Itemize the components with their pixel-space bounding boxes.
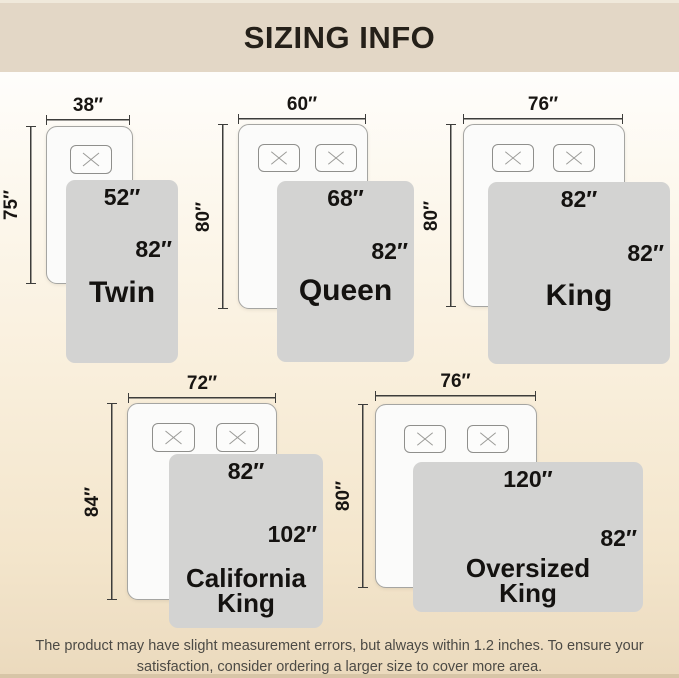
blanket-overlay: 82″ 102″ CaliforniaKing [169,454,323,628]
x-mark-icon [405,426,445,452]
dimension-line [463,114,623,124]
page-title: SIZING INFO [244,20,436,56]
mattress-width-dimension: 72″ [128,373,276,403]
blanket-length-label: 82″ [135,236,172,263]
mattress-width-dimension: 60″ [238,94,366,124]
bed-name-label: Twin [66,277,178,309]
dimension-line [238,114,366,124]
dimension-line [128,393,276,403]
dimension-line [375,391,536,401]
blanket-width-label: 82″ [169,458,323,485]
pillow-icon [492,144,534,172]
blanket-width-label: 82″ [488,186,670,213]
mattress-width-label: 76″ [463,94,623,113]
pillow-icon [258,144,300,172]
bed-name-label: Queen [277,275,414,307]
pillow-icon [70,145,112,174]
mattress-length-label: 84″ [82,486,104,516]
mattress-length-label: 80″ [333,481,355,511]
mattress-width-dimension: 76″ [375,371,536,401]
mattress-width-dimension: 76″ [463,94,623,124]
mattress-length-label: 75″ [1,190,23,220]
mattress-length-dimension: 80″ [218,124,228,309]
disclaimer-line-1: The product may have slight measurement … [35,638,643,654]
pillow-icon [216,423,259,452]
blanket-length-label: 102″ [268,521,317,548]
bed-name-label: King [488,280,670,312]
blanket-overlay: 120″ 82″ OversizedKing [413,462,643,612]
x-mark-icon [71,146,111,173]
blanket-overlay: 52″ 82″ Twin [66,180,178,363]
mattress-length-label: 80″ [421,200,443,230]
pillow-icon [553,144,595,172]
disclaimer-text: The product may have slight measurement … [0,636,679,678]
blanket-width-label: 120″ [413,466,643,493]
bottom-edge-strip [0,674,679,678]
blanket-length-label: 82″ [600,525,637,552]
x-mark-icon [217,424,258,451]
mattress-length-dimension: 80″ [446,124,456,307]
mattress-width-dimension: 38″ [46,95,130,125]
x-mark-icon [554,145,594,171]
sizing-info-infographic: SIZING INFO 38″ 75″ 52″ 82″ Twin 60″ 80″ [0,0,679,678]
pillow-icon [467,425,509,453]
mattress-length-dimension: 84″ [107,403,117,600]
mattress-length-label: 80″ [193,201,215,231]
mattress-width-label: 38″ [46,95,130,114]
mattress-length-dimension: 75″ [26,126,36,284]
disclaimer-line-2: satisfaction, consider ordering a larger… [137,659,542,675]
x-mark-icon [468,426,508,452]
blanket-overlay: 68″ 82″ Queen [277,181,414,362]
blanket-overlay: 82″ 82″ King [488,182,670,364]
x-mark-icon [316,145,356,171]
x-mark-icon [259,145,299,171]
blanket-width-label: 68″ [277,185,414,212]
mattress-width-label: 76″ [375,371,536,390]
x-mark-icon [493,145,533,171]
bed-name-label: CaliforniaKing [169,566,323,616]
dimension-line [46,115,130,125]
pillow-icon [404,425,446,453]
mattress-width-label: 60″ [238,94,366,113]
pillow-icon [152,423,195,452]
mattress-width-label: 72″ [128,373,276,392]
x-mark-icon [153,424,194,451]
mattress-length-dimension: 80″ [358,404,368,588]
pillow-icon [315,144,357,172]
header-bar: SIZING INFO [0,3,679,72]
bed-name-label: OversizedKing [413,556,643,606]
blanket-width-label: 52″ [66,184,178,211]
blanket-length-label: 82″ [627,240,664,267]
blanket-length-label: 82″ [371,238,408,265]
